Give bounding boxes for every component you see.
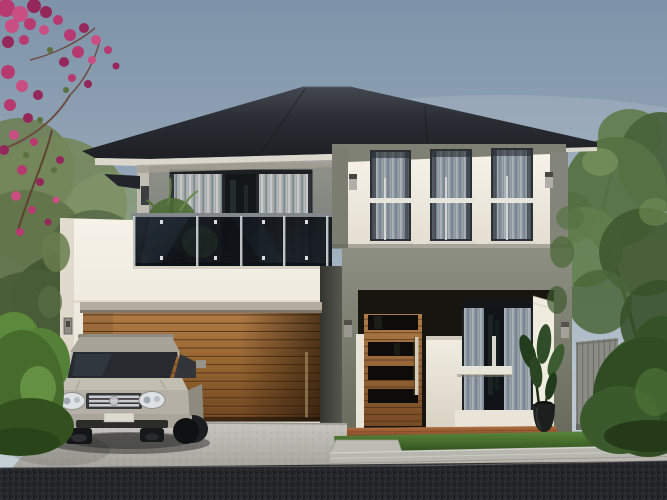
hood <box>60 378 188 390</box>
window-ledge <box>457 366 512 375</box>
grille <box>86 393 142 409</box>
entry-timber-door <box>364 314 422 426</box>
ground-floor-window <box>455 300 535 428</box>
license-plate <box>104 413 134 422</box>
upper-right-block <box>332 144 568 249</box>
garage-keypad <box>64 318 72 334</box>
rendered-photo <box>0 0 667 500</box>
recessed-corner-wall <box>320 266 342 433</box>
upper-window-2 <box>427 149 475 245</box>
balcony-glass-railing <box>131 213 334 266</box>
house-render-canvas <box>0 0 667 500</box>
bumper <box>58 413 192 428</box>
upper-window-1 <box>367 150 414 245</box>
entry-block <box>340 248 572 441</box>
balcony-wall-sconce-icon <box>141 186 149 205</box>
entry-pier-left <box>356 334 364 430</box>
upper-window-3 <box>488 148 536 245</box>
mirror-right <box>196 360 206 368</box>
car-roof <box>70 337 180 352</box>
door-pull-handle <box>415 337 419 395</box>
